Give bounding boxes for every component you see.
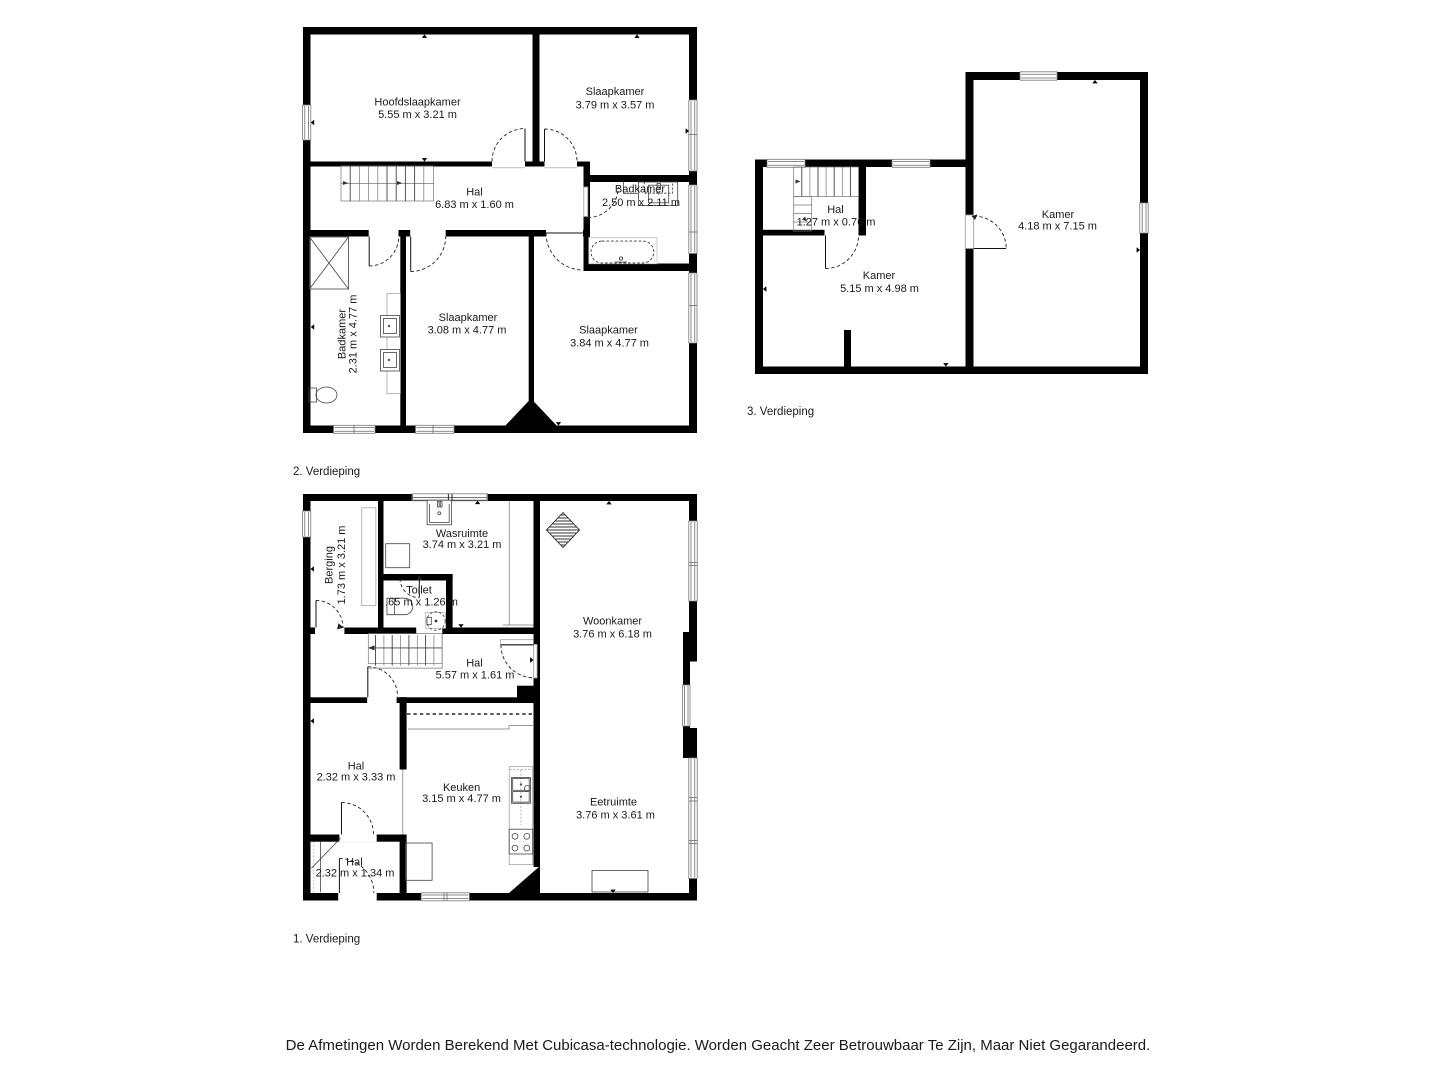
svg-text:3.76 m x 6.18 m: 3.76 m x 6.18 m <box>573 629 652 641</box>
svg-text:Badkamer: Badkamer <box>336 309 348 359</box>
svg-text:4.18 m x 7.15 m: 4.18 m x 7.15 m <box>1018 221 1097 233</box>
svg-text:3.84 m x 4.77 m: 3.84 m x 4.77 m <box>570 338 649 350</box>
svg-text:2. Verdieping: 2. Verdieping <box>293 466 360 478</box>
svg-text:5.55 m x 3.21 m: 5.55 m x 3.21 m <box>378 109 457 121</box>
svg-text:3.76 m x 3.61 m: 3.76 m x 3.61 m <box>576 810 655 822</box>
svg-text:Berging: Berging <box>324 546 336 584</box>
svg-text:De Afmetingen Worden Berekend: De Afmetingen Worden Berekend Met Cubica… <box>286 1037 1151 1054</box>
svg-text:Slaapkamer: Slaapkamer <box>439 312 498 324</box>
svg-text:1. Verdieping: 1. Verdieping <box>293 934 360 946</box>
svg-text:Hoofdslaapkamer: Hoofdslaapkamer <box>374 97 461 109</box>
svg-text:Hal: Hal <box>466 658 483 670</box>
svg-text:1.27 m x 0.76 m: 1.27 m x 0.76 m <box>797 217 876 229</box>
svg-text:3.15 m x 4.77 m: 3.15 m x 4.77 m <box>422 793 501 805</box>
svg-text:3.74 m x 3.21 m: 3.74 m x 3.21 m <box>423 539 502 551</box>
svg-text:Eetruimte: Eetruimte <box>590 797 637 809</box>
svg-text:Woonkamer: Woonkamer <box>583 616 642 628</box>
svg-text:Slaapkamer: Slaapkamer <box>586 86 645 98</box>
svg-text:3. Verdieping: 3. Verdieping <box>747 406 814 418</box>
svg-text:Hal: Hal <box>466 187 483 199</box>
svg-text:Kamer: Kamer <box>863 270 896 282</box>
svg-text:Slaapkamer: Slaapkamer <box>579 325 638 337</box>
svg-text:5.57 m x 1.61 m: 5.57 m x 1.61 m <box>436 670 515 682</box>
svg-text:2.50 m x 2.11 m: 2.50 m x 2.11 m <box>602 197 680 209</box>
svg-text:Toilet: Toilet <box>406 585 432 597</box>
svg-text:2.32 m x 3.33 m: 2.32 m x 3.33 m <box>317 772 396 784</box>
svg-text:5.15 m x 4.98 m: 5.15 m x 4.98 m <box>840 283 919 295</box>
svg-text:Kamer: Kamer <box>1042 209 1075 221</box>
svg-text:2.31 m x 4.77 m: 2.31 m x 4.77 m <box>348 295 360 374</box>
svg-text:.65 m x 1.26 m: .65 m x 1.26 m <box>385 597 458 609</box>
svg-text:3.79 m x 3.57 m: 3.79 m x 3.57 m <box>576 100 655 112</box>
svg-text:1.73 m x 3.21 m: 1.73 m x 3.21 m <box>336 526 348 605</box>
svg-text:Badkamer: Badkamer <box>615 184 665 196</box>
svg-text:6.83 m x 1.60 m: 6.83 m x 1.60 m <box>435 199 514 211</box>
svg-text:Hal: Hal <box>827 204 844 216</box>
svg-text:3.08 m x 4.77 m: 3.08 m x 4.77 m <box>428 325 507 337</box>
svg-text:2.32 m x 1.34 m: 2.32 m x 1.34 m <box>316 868 395 880</box>
